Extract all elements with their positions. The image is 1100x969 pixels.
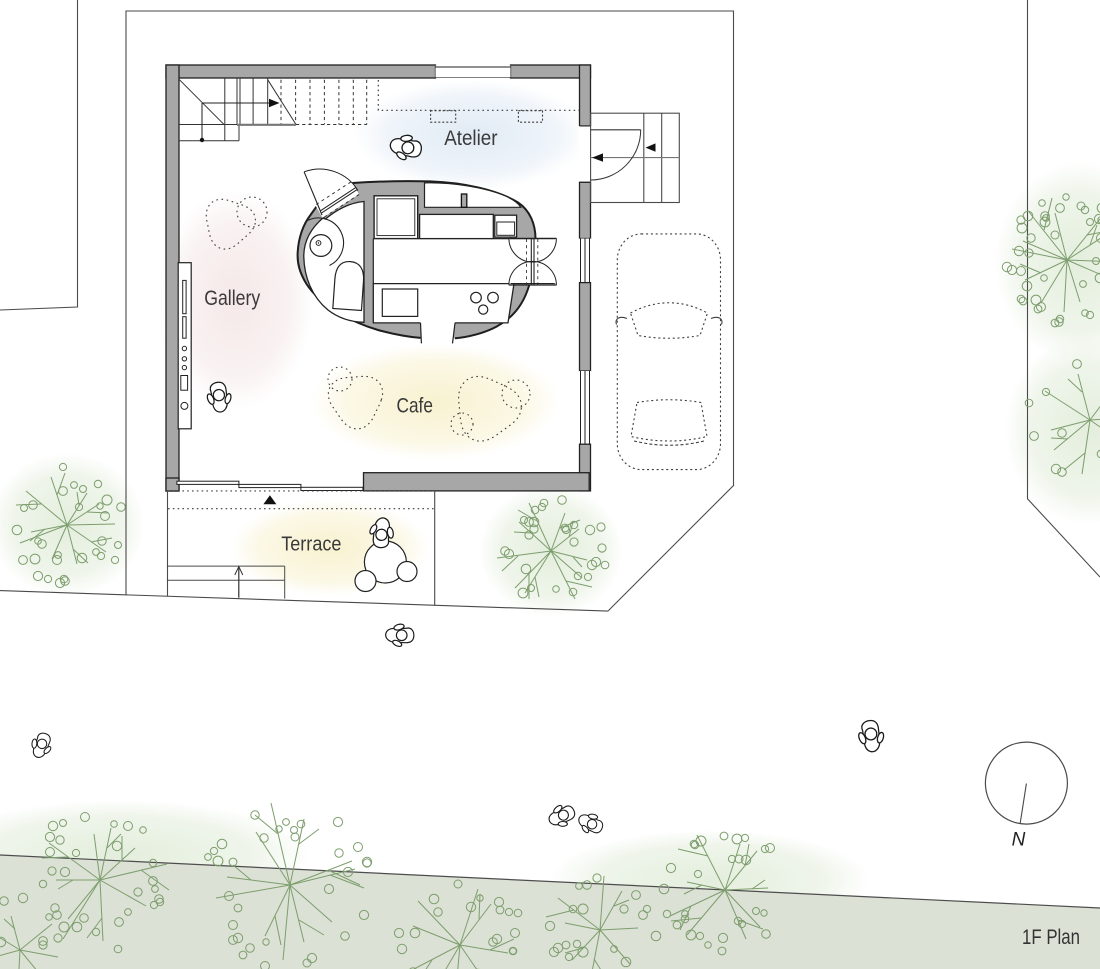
svg-text:1F Plan: 1F Plan: [1022, 926, 1080, 949]
svg-text:Atelier: Atelier: [444, 127, 497, 150]
svg-text:Terrace: Terrace: [281, 534, 341, 556]
svg-text:N: N: [1012, 830, 1026, 851]
svg-text:Gallery: Gallery: [204, 287, 260, 310]
svg-text:Cafe: Cafe: [397, 395, 433, 418]
